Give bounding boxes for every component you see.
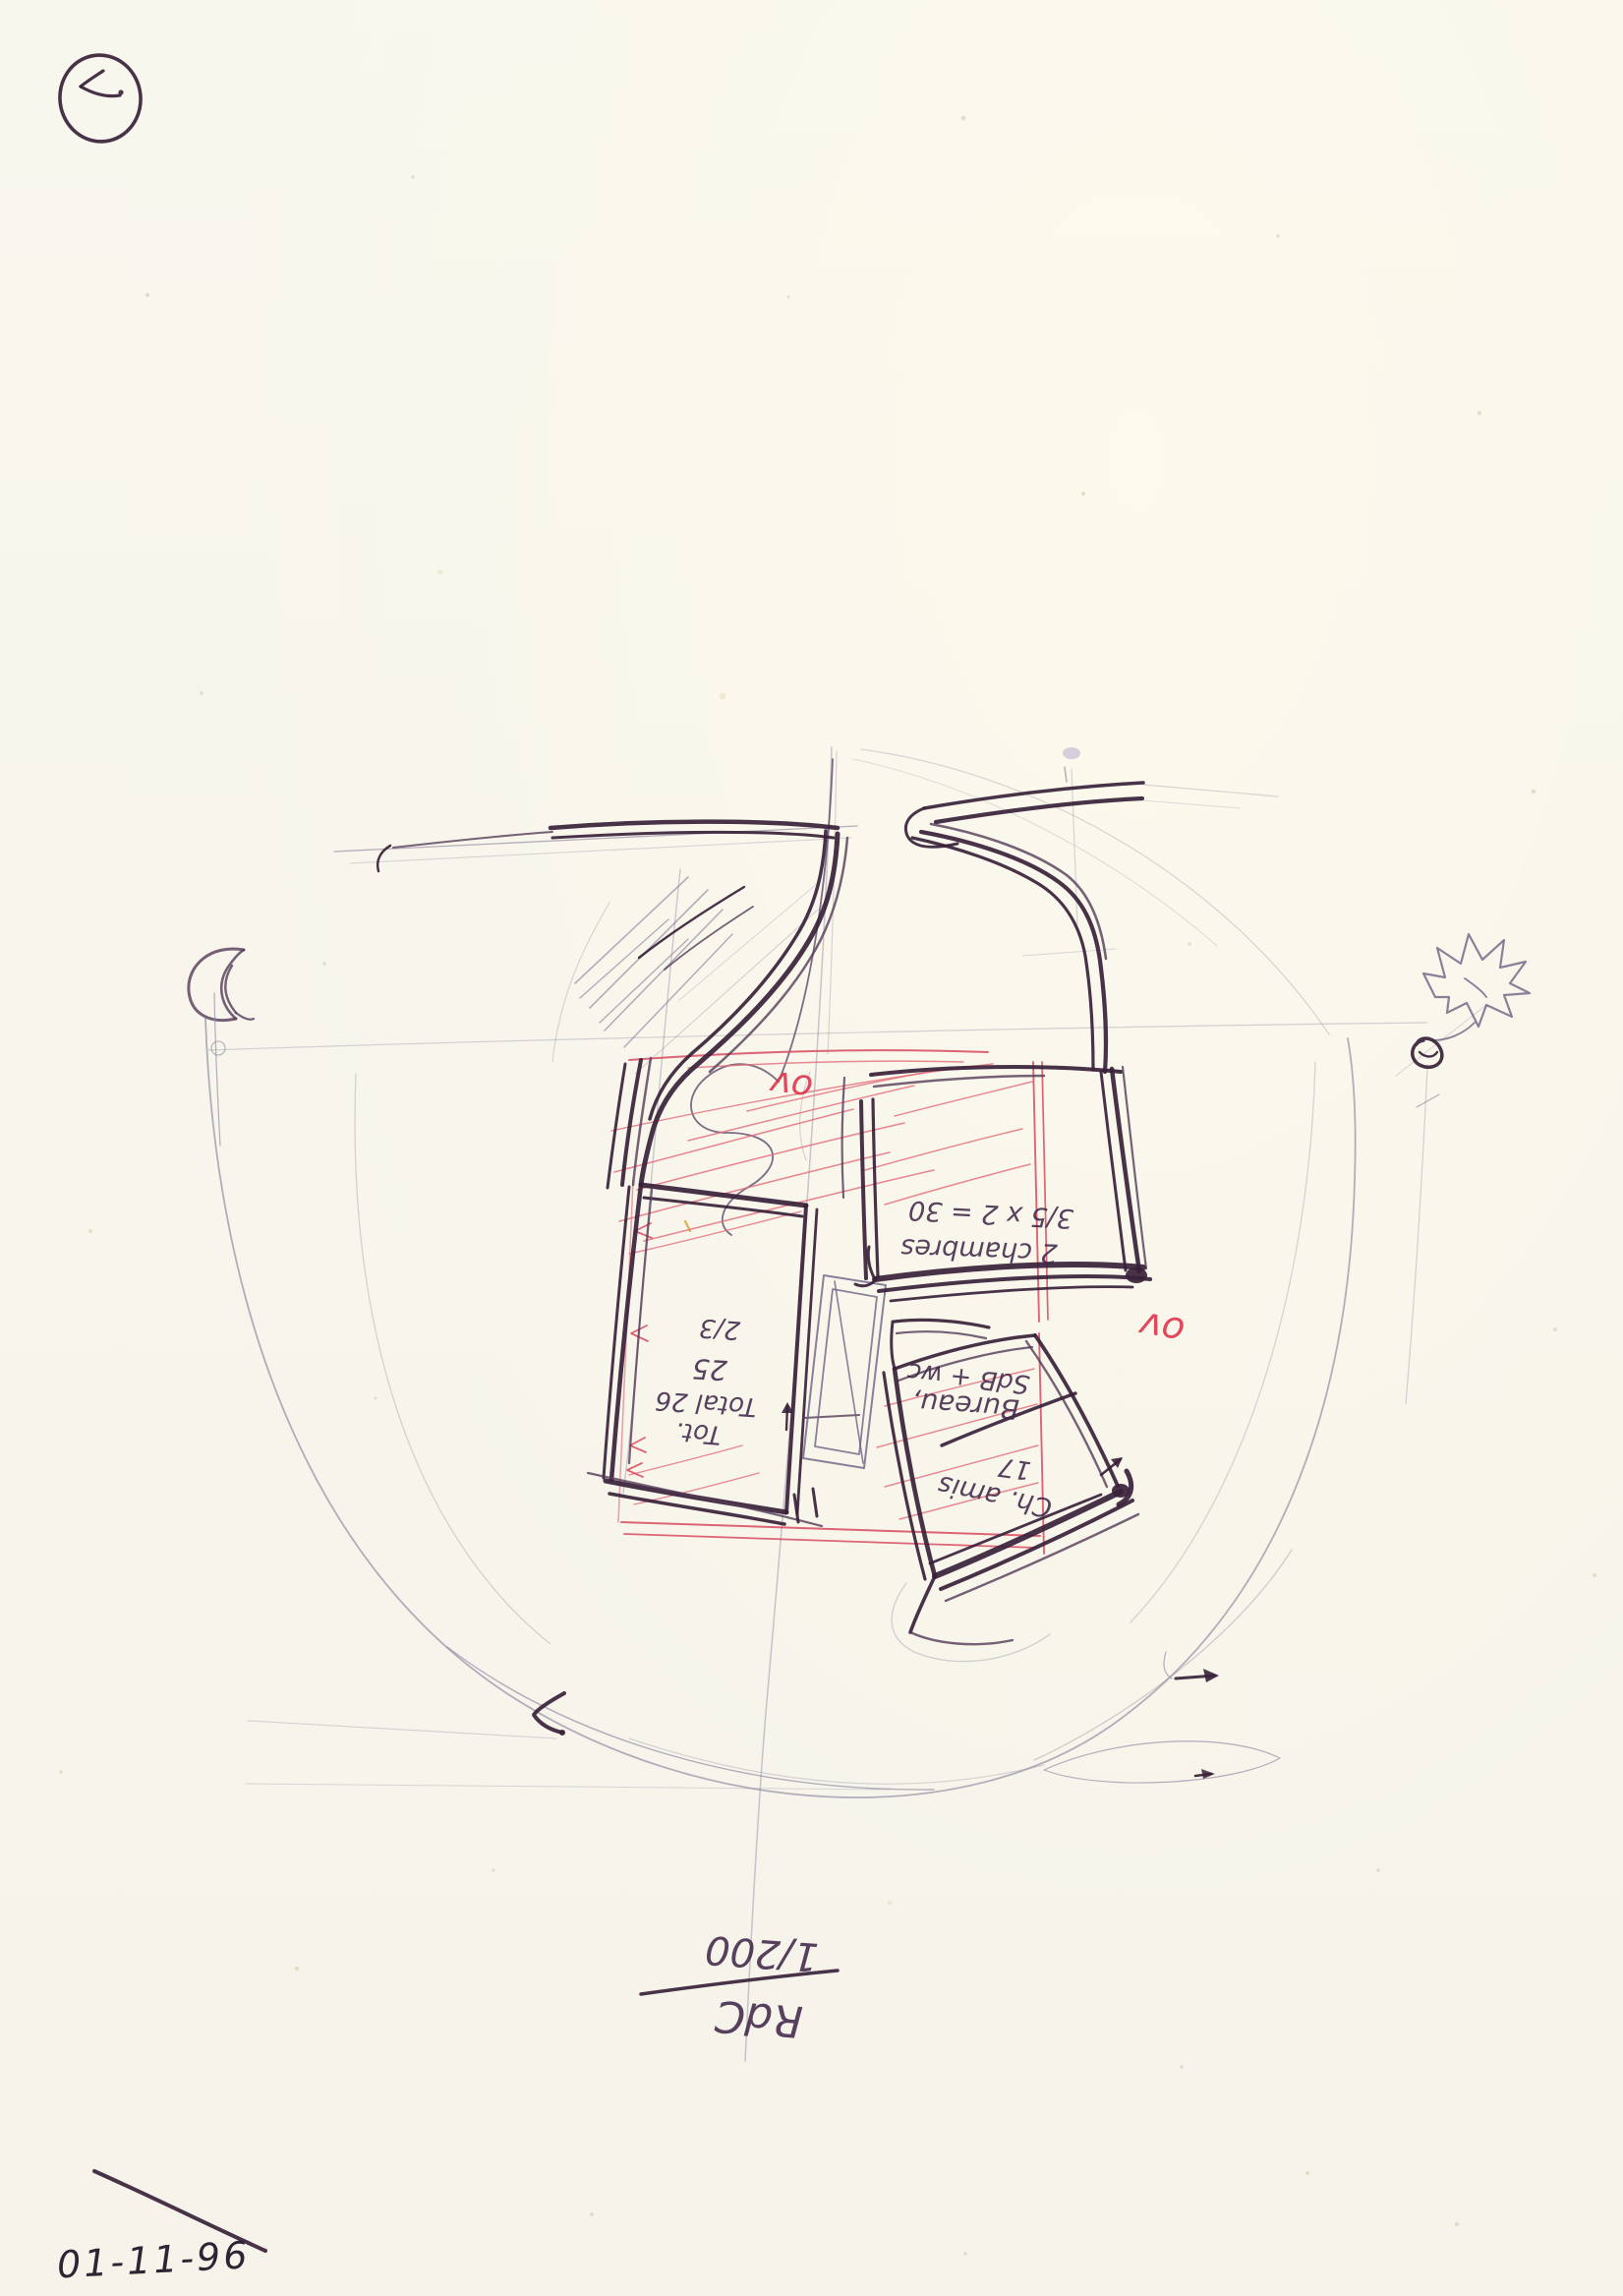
note-lower-right-17: 17 bbox=[996, 1451, 1032, 1485]
note-left-1: 2/3 bbox=[698, 1313, 741, 1345]
red-note-upper: ov bbox=[767, 1062, 815, 1108]
scanned-sketch-paper: ov ov 3/5 x 2 = 30 2 chambres 2/3 25 Tot… bbox=[0, 0, 1623, 2296]
note-left-4: Tot. bbox=[673, 1416, 722, 1449]
pencil-smudge bbox=[1063, 747, 1080, 759]
red-note-right: ov bbox=[1135, 1303, 1188, 1353]
date-text: 01-11-96 bbox=[56, 2233, 252, 2286]
pencil-construction-lines bbox=[205, 747, 1486, 2061]
paper-speckles bbox=[59, 116, 1596, 2256]
orientation-circle-mark bbox=[54, 50, 145, 147]
note-left-3: Total 26 bbox=[655, 1384, 758, 1421]
note-upper-right-rooms: 2 chambres bbox=[900, 1232, 1058, 1268]
scale-annotation: 1/200 RdC bbox=[641, 1926, 838, 2046]
note-left-2: 25 bbox=[691, 1352, 727, 1386]
date-annotation: 01-11-96 bbox=[56, 2171, 265, 2287]
doodle-crescent-tree bbox=[189, 949, 254, 1146]
note-upper-right-calc: 3/5 x 2 = 30 bbox=[907, 1195, 1073, 1234]
scale-numerator: 1/200 bbox=[704, 1926, 820, 1979]
scale-denominator: RdC bbox=[713, 1990, 804, 2046]
note-lower-right-chamis: Ch. amis bbox=[935, 1469, 1054, 1523]
doodle-flower-tree bbox=[1413, 934, 1530, 1067]
